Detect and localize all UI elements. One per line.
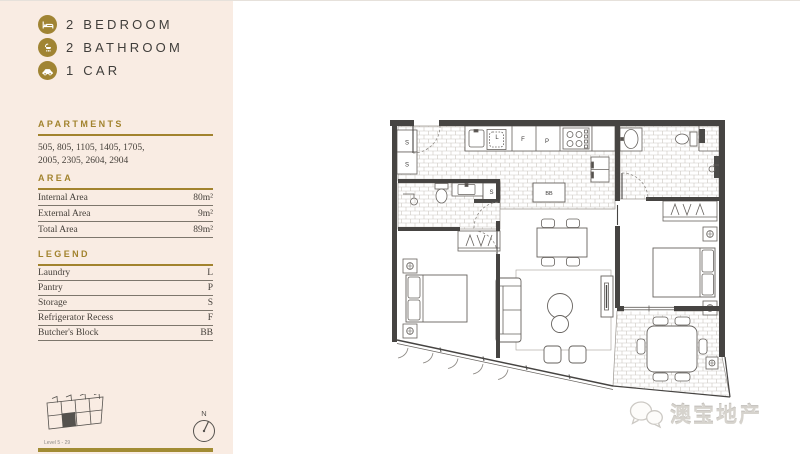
- legend-label: Refrigerator Recess: [38, 313, 113, 323]
- summary-label: 1 CAR: [66, 63, 120, 78]
- area-value: 9m²: [198, 209, 213, 219]
- area-label: Internal Area: [38, 193, 88, 203]
- car-icon: [38, 61, 57, 80]
- apartments-section: APARTMENTS 505, 805, 1105, 1405, 1705, 2…: [38, 119, 213, 168]
- legend-row: Butcher's Block BB: [38, 326, 213, 341]
- info-panel: 2 BEDROOM 2 BATHROOM 1 CAR APARTMENTS 50…: [0, 1, 233, 454]
- legend-label: Laundry: [38, 268, 70, 278]
- storage-label: S: [405, 163, 409, 169]
- watermark: 澳宝地产: [628, 399, 762, 429]
- legend-code: P: [208, 283, 213, 293]
- wechat-logo-icon: [628, 399, 664, 429]
- gold-bar: [38, 448, 213, 452]
- area-value: 80m²: [193, 193, 213, 203]
- legend-label: Storage: [38, 298, 67, 308]
- summary-label: 2 BEDROOM: [66, 17, 173, 32]
- area-row: External Area 9m²: [38, 206, 213, 222]
- key-plan-drawing: [44, 394, 106, 434]
- shower-icon: [38, 38, 57, 57]
- apartments-heading: APARTMENTS: [38, 119, 213, 129]
- balcony-slider: [624, 306, 674, 312]
- apartments-line: 505, 805, 1105, 1405, 1705,: [38, 142, 213, 155]
- compass: N: [189, 407, 219, 450]
- area-section: AREA Internal Area 80m² External Area 9m…: [38, 173, 213, 238]
- legend-label: Pantry: [38, 283, 63, 293]
- area-row: Total Area 89m²: [38, 222, 213, 238]
- summary-row-bedroom: 2 BEDROOM: [38, 13, 223, 36]
- legend-code: BB: [200, 328, 213, 338]
- watermark-text: 澳宝地产: [670, 399, 762, 429]
- legend-code: S: [208, 298, 213, 308]
- legend-row: Storage S: [38, 296, 213, 311]
- summary-row-car: 1 CAR: [38, 59, 223, 82]
- legend-row: Pantry P: [38, 281, 213, 296]
- storage-label: S: [405, 141, 409, 147]
- compass-needle: [204, 422, 209, 432]
- divider: [38, 134, 213, 136]
- legend-code: F: [208, 313, 213, 323]
- legend-code: L: [207, 268, 213, 278]
- summary-label: 2 BATHROOM: [66, 40, 183, 55]
- legend-row: Refrigerator Recess F: [38, 311, 213, 326]
- floorplan-page: 2 BEDROOM 2 BATHROOM 1 CAR APARTMENTS 50…: [0, 0, 800, 454]
- legend-section: LEGEND Laundry L Pantry P Storage S Refr…: [38, 249, 213, 341]
- legend-label: Butcher's Block: [38, 328, 99, 338]
- bed-icon: [38, 15, 57, 34]
- storage-label: S: [489, 190, 493, 196]
- summary-row-bathroom: 2 BATHROOM: [38, 36, 223, 59]
- floorplan-drawing: S S L F P S BB: [370, 99, 772, 411]
- pantry-label: P: [545, 139, 549, 145]
- area-row: Internal Area 80m²: [38, 190, 213, 206]
- floorplan: S S L F P S BB: [370, 99, 772, 411]
- fridge-label: F: [521, 137, 525, 143]
- summary-list: 2 BEDROOM 2 BATHROOM 1 CAR: [38, 13, 223, 82]
- area-label: Total Area: [38, 225, 78, 235]
- legend-heading: LEGEND: [38, 249, 213, 259]
- key-plan: Level 5 - 29: [44, 394, 106, 446]
- area-value: 89m²: [193, 225, 213, 235]
- butchers-block-label: BB: [545, 191, 553, 197]
- area-label: External Area: [38, 209, 91, 219]
- legend-row: Laundry L: [38, 266, 213, 281]
- key-plan-caption: Level 5 - 29: [44, 440, 106, 446]
- apartments-line: 2005, 2305, 2604, 2904: [38, 155, 213, 168]
- area-heading: AREA: [38, 173, 213, 183]
- apartments-list: 505, 805, 1105, 1405, 1705, 2005, 2305, …: [38, 142, 213, 168]
- north-label: N: [201, 409, 206, 418]
